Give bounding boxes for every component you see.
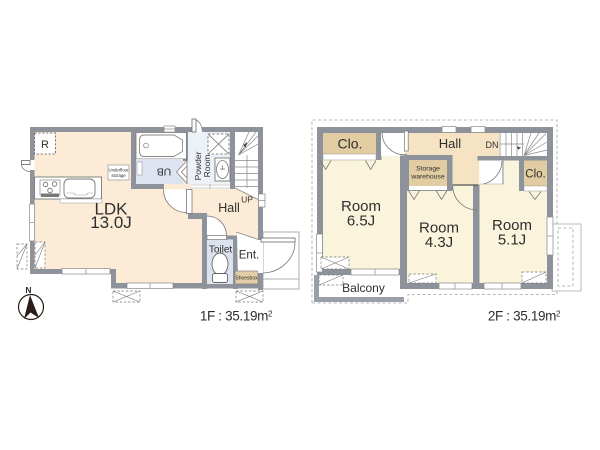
svg-text:5.1J: 5.1J (498, 232, 526, 249)
svg-text:DN: DN (486, 140, 499, 150)
svg-text:warehouse: warehouse (410, 174, 444, 181)
svg-text:Clo.: Clo. (338, 136, 363, 152)
svg-text:2F : 35.19m2: 2F : 35.19m2 (488, 309, 561, 324)
svg-text:Storage: Storage (416, 166, 440, 173)
svg-text:6.5J: 6.5J (347, 213, 375, 230)
svg-text:storage: storage (111, 173, 126, 178)
svg-text:1F : 35.19m2: 1F : 35.19m2 (200, 309, 273, 324)
svg-text:Balcony: Balcony (342, 281, 385, 295)
svg-text:Shoesbox: Shoesbox (235, 276, 258, 282)
svg-text:Ent.: Ent. (239, 250, 259, 262)
svg-text:Clo.: Clo. (525, 169, 545, 181)
svg-text:4.3J: 4.3J (425, 234, 453, 251)
svg-text:N: N (25, 285, 31, 295)
svg-text:R: R (41, 139, 49, 151)
svg-text:Hall: Hall (439, 136, 462, 151)
svg-text:UB: UB (157, 166, 172, 178)
svg-text:Room: Room (202, 155, 212, 178)
svg-text:Hall: Hall (218, 201, 240, 215)
svg-text:UP: UP (241, 195, 253, 205)
svg-text:13.0J: 13.0J (90, 213, 132, 232)
svg-text:Toilet: Toilet (209, 245, 233, 256)
svg-text:Underfloor: Underfloor (108, 168, 129, 173)
